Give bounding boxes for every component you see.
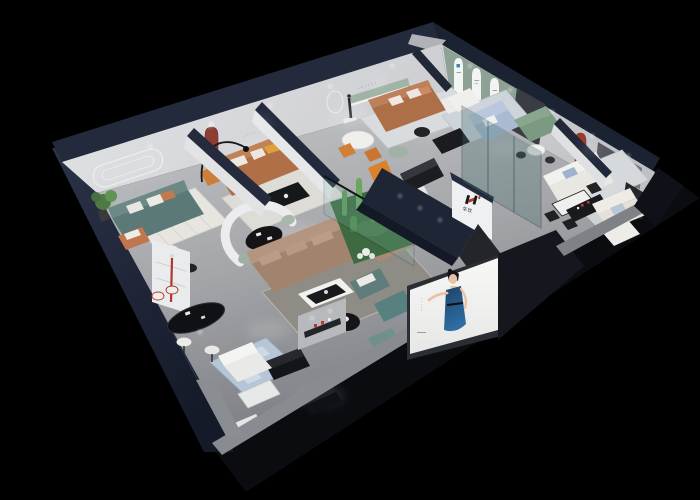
white-flowers <box>357 253 363 259</box>
black-chair <box>545 157 555 164</box>
floor-spotlight <box>199 331 202 334</box>
white-flowers <box>362 248 370 256</box>
plant-leaves <box>105 190 117 202</box>
hair-bun <box>448 269 452 273</box>
lamp-shade <box>243 146 249 152</box>
poster-vertical-text: ····· <box>419 298 424 312</box>
round-mirror <box>327 91 343 113</box>
bar-stool <box>205 346 220 355</box>
arch-text-line <box>493 90 498 91</box>
model-face <box>449 274 457 284</box>
shelf-spotlight <box>311 317 314 320</box>
red-frame-chair <box>152 292 164 300</box>
brand-item-red <box>587 201 590 204</box>
track-light <box>439 219 442 222</box>
statue-head <box>347 94 351 98</box>
table-decor <box>324 290 328 294</box>
arch-text-line <box>475 83 479 84</box>
shelf-spotlight <box>329 310 332 313</box>
dark-side-table <box>414 127 430 137</box>
showroom-scene: ····· ······ <box>0 0 700 500</box>
showroom-render: ····· ······ <box>0 0 700 500</box>
red-floor-lamp <box>171 258 172 302</box>
red-frame-chair <box>166 286 178 294</box>
shelf-brand-item <box>314 324 317 327</box>
poster-caption-mark <box>417 332 426 333</box>
plant-leaves <box>91 192 101 202</box>
track-light <box>419 207 422 210</box>
arch-text-line <box>457 72 462 73</box>
lamp-top <box>170 254 174 258</box>
brand-item-red <box>581 204 584 207</box>
arch-logo-mark <box>457 64 460 67</box>
shelf-brand-item <box>321 321 324 324</box>
bar-stool <box>177 338 192 347</box>
sage-ottoman <box>388 146 408 158</box>
brand-item-white <box>577 207 579 209</box>
white-flowers <box>369 253 375 259</box>
arch-text-line <box>475 80 480 81</box>
shelf-brand-item <box>328 318 331 321</box>
table-decor <box>284 194 288 198</box>
track-light <box>399 195 402 198</box>
